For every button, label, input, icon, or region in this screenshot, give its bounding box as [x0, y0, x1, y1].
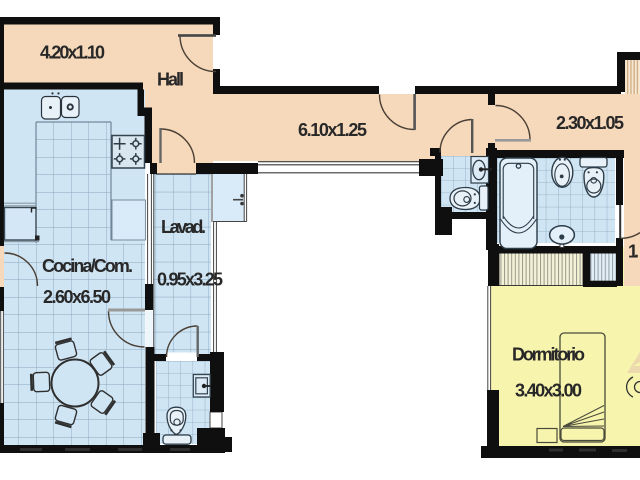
svg-text:Dormitorio: Dormitorio — [512, 345, 585, 365]
svg-text:Cocina/Com.: Cocina/Com. — [42, 256, 133, 276]
svg-text:Hall: Hall — [157, 70, 184, 90]
svg-text:4.20x1.10: 4.20x1.10 — [40, 43, 105, 63]
svg-text:Lavad.: Lavad. — [161, 217, 206, 237]
svg-text:6.10x1.25: 6.10x1.25 — [298, 120, 367, 140]
svg-text:2.30x1.05: 2.30x1.05 — [556, 113, 624, 133]
svg-text:3.40x3.00: 3.40x3.00 — [515, 381, 582, 401]
svg-text:0.95x3.25: 0.95x3.25 — [157, 270, 223, 290]
svg-text:2.60x6.50: 2.60x6.50 — [43, 287, 111, 307]
svg-text:1.: 1. — [628, 242, 639, 262]
